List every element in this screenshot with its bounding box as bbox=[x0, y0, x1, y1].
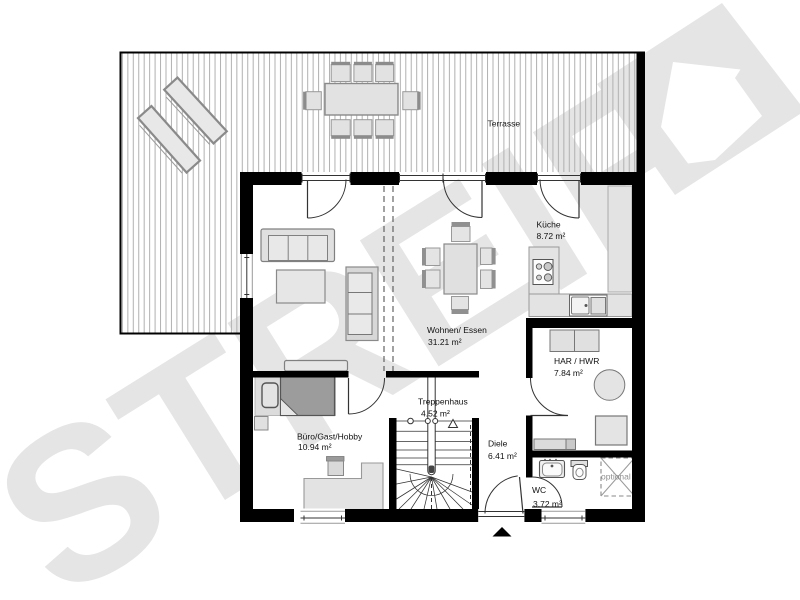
svg-text:HAR / HWR: HAR / HWR bbox=[554, 356, 599, 366]
svg-text:Treppenhaus: Treppenhaus bbox=[418, 397, 468, 407]
svg-text:4.52 m²: 4.52 m² bbox=[421, 409, 450, 419]
svg-text:3.72 m²: 3.72 m² bbox=[533, 499, 562, 509]
svg-text:WC: WC bbox=[532, 485, 546, 495]
svg-text:Diele: Diele bbox=[488, 439, 508, 449]
svg-text:7.84 m²: 7.84 m² bbox=[554, 368, 583, 378]
svg-text:6.41 m²: 6.41 m² bbox=[488, 451, 517, 461]
svg-text:Terrasse: Terrasse bbox=[488, 119, 521, 129]
svg-text:10.94 m²: 10.94 m² bbox=[298, 442, 332, 452]
svg-text:Küche: Küche bbox=[537, 220, 561, 230]
svg-text:optional: optional bbox=[601, 472, 631, 482]
svg-text:31.21 m²: 31.21 m² bbox=[428, 337, 462, 347]
svg-text:8.72 m²: 8.72 m² bbox=[537, 231, 566, 241]
svg-text:Büro/Gast/Hobby: Büro/Gast/Hobby bbox=[297, 432, 363, 442]
svg-text:Wohnen/ Essen: Wohnen/ Essen bbox=[427, 325, 487, 335]
